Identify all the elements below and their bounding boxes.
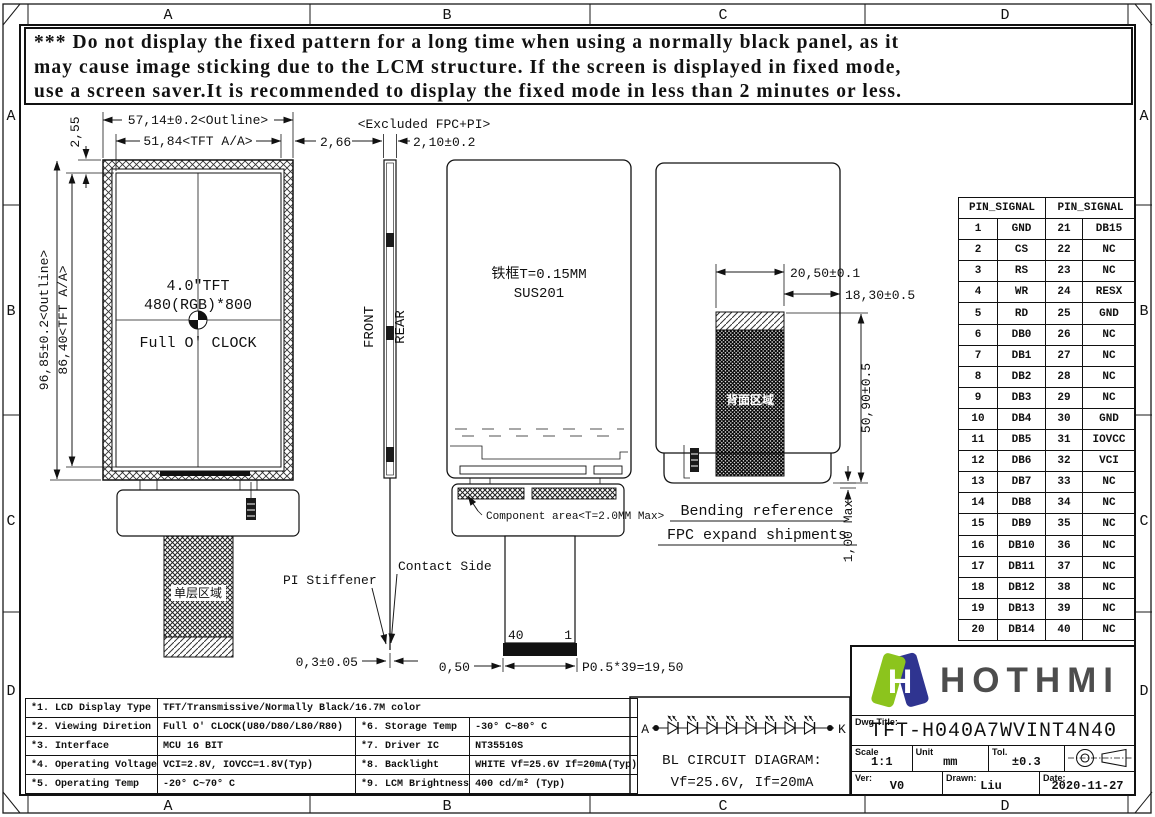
pin-signal: DB8 <box>998 493 1046 514</box>
pin-number: 37 <box>1046 556 1083 577</box>
version-value: V0 <box>852 779 942 793</box>
fpc-back-area-label: 背面区域 <box>726 392 774 408</box>
spec-label: *3. Interface <box>26 737 158 756</box>
table-row: 15DB935NC <box>959 514 1136 535</box>
pin-number: 31 <box>1046 430 1083 451</box>
bl-circuit-values: Vf=25.6V, If=20mA <box>671 775 814 791</box>
grid-letter: A <box>163 798 172 815</box>
bending-caption-1: Bending reference <box>680 503 833 520</box>
pin-signal: DB4 <box>998 408 1046 429</box>
table-row: 12DB632VCI <box>959 451 1136 472</box>
bending-reference-drawing: 背面区域 20,50±0.1 18,30±0.5 50,90±0.5 1,00 … <box>656 163 915 562</box>
pin-number: 12 <box>959 451 998 472</box>
pin-signal: DB9 <box>998 514 1046 535</box>
pin-signal: NC <box>1083 345 1136 366</box>
table-row: 17DB1137NC <box>959 556 1136 577</box>
pin-signal: RS <box>998 261 1046 282</box>
table-row: 9DB329NC <box>959 387 1136 408</box>
dim-fpc-edge-offset: 18,30±0.5 <box>845 288 915 303</box>
brand-name: HOTHMI <box>940 661 1120 701</box>
dwg-title-row: Dwg Title: TFT-H040A7WVINT4N40 <box>852 715 1135 745</box>
drawing-title: TFT-H040A7WVINT4N40 <box>852 720 1135 743</box>
pin-40-label: 40 <box>508 628 524 643</box>
grid-letter: A <box>6 108 15 125</box>
rear-view-drawing: 铁框T=0.15MM SUS201 Component area<T=2.0MM… <box>439 160 684 675</box>
pin-signal: DB0 <box>998 324 1046 345</box>
bl-circuit-diagram: A K BL CIRCUIT DIAGRAM: Vf=25.6V, If=20m… <box>641 716 846 792</box>
pin-number: 33 <box>1046 472 1083 493</box>
pin-signal: NC <box>1083 324 1136 345</box>
pin-number: 14 <box>959 493 998 514</box>
pin-number: 6 <box>959 324 998 345</box>
table-row: 16DB1036NC <box>959 535 1136 556</box>
anode-label: A <box>641 722 649 737</box>
pin-signal: DB2 <box>998 366 1046 387</box>
pin-signal: DB3 <box>998 387 1046 408</box>
svg-text:H: H <box>888 663 913 701</box>
grid-letter: D <box>1000 7 1009 24</box>
pin-number: 28 <box>1046 366 1083 387</box>
pin-signal: GND <box>998 219 1046 240</box>
spec-value: Full O' CLOCK(U80/D80/L80/R80) <box>158 718 356 737</box>
rear-side-label: REAR <box>393 310 409 344</box>
pin-signal: CS <box>998 240 1046 261</box>
table-row: 4WR24RESX <box>959 282 1136 303</box>
pin-number: 20 <box>959 619 998 640</box>
pin-number: 3 <box>959 261 998 282</box>
pin-number: 35 <box>1046 514 1083 535</box>
pin-signal: DB10 <box>998 535 1046 556</box>
pin-signal: NC <box>1083 240 1136 261</box>
spec-label: *5. Operating Temp <box>26 775 158 794</box>
pin-number: 34 <box>1046 493 1083 514</box>
table-row: *5. Operating Temp -20° C~70° C *9. LCM … <box>26 775 638 794</box>
pin-signal: NC <box>1083 619 1136 640</box>
pin-1-label: 1 <box>564 628 572 643</box>
pin-signal: RD <box>998 303 1046 324</box>
table-row: *2. Viewing Diretion Full O' CLOCK(U80/D… <box>26 718 638 737</box>
pin-signal: NC <box>1083 366 1136 387</box>
grid-letter: C <box>718 7 727 24</box>
pin-signal: WR <box>998 282 1046 303</box>
frame-material-grade: SUS201 <box>514 286 564 302</box>
unit-value: mm <box>913 755 988 769</box>
dim-pin-pitch: P0.5*39=19,50 <box>582 660 683 675</box>
specification-table: *1. LCD Display Type TFT/Transmissive/No… <box>25 698 638 794</box>
pin-number: 36 <box>1046 535 1083 556</box>
table-row: 19DB1339NC <box>959 598 1136 619</box>
dim-border-right: 2,66 <box>320 135 351 150</box>
spec-value: -20° C~70° C <box>158 775 356 794</box>
component-area-label: Component area<T=2.0MM Max> <box>486 511 664 523</box>
pin-number: 2 <box>959 240 998 261</box>
pin-number: 24 <box>1046 282 1083 303</box>
dim-pi-thickness: 0,3±0.05 <box>296 655 358 670</box>
pin-number: 13 <box>959 472 998 493</box>
grid-letter: A <box>163 7 172 24</box>
table-row: 3RS23NC <box>959 261 1136 282</box>
pin-number: 16 <box>959 535 998 556</box>
spec-label: *7. Driver IC <box>356 737 470 756</box>
dim-thickness: 2,10±0.2 <box>413 135 475 150</box>
pin-number: 11 <box>959 430 998 451</box>
pin-number: 5 <box>959 303 998 324</box>
pin-number: 32 <box>1046 451 1083 472</box>
dim-pin-offset: 0,50 <box>439 660 470 675</box>
spec-value: TFT/Transmissive/Normally Black/16.7M co… <box>158 699 638 718</box>
pin-signal: NC <box>1083 535 1136 556</box>
single-layer-area-label: 单层区域 <box>174 586 222 601</box>
grid-letter: B <box>442 798 451 815</box>
pin-number: 9 <box>959 387 998 408</box>
grid-letter: B <box>6 303 15 320</box>
pin-number: 22 <box>1046 240 1083 261</box>
table-row: 6DB026NC <box>959 324 1136 345</box>
panel-size-label: 4.0″TFT <box>166 278 229 295</box>
table-row: *4. Operating Voltage VCI=2.8V, IOVCC=1.… <box>26 756 638 775</box>
dim-active-area-width: 51,84<TFT A/A> <box>143 134 252 149</box>
pin-signal: NC <box>1083 556 1136 577</box>
pin-signal: DB12 <box>998 577 1046 598</box>
front-side-label: FRONT <box>362 306 378 348</box>
pin-signal: DB13 <box>998 598 1046 619</box>
grid-letter: A <box>1139 108 1148 125</box>
viewing-direction-label: Full O' CLOCK <box>139 335 256 352</box>
table-row: 7DB127NC <box>959 345 1136 366</box>
contact-side-label: Contact Side <box>398 559 492 574</box>
spec-label: *6. Storage Temp <box>356 718 470 737</box>
frame-material-note: 铁框T=0.15MM <box>491 266 586 283</box>
dim-outline-width: 57,14±0.2<Outline> <box>128 113 269 128</box>
pin-number: 8 <box>959 366 998 387</box>
pin-signal-table: PIN_SIGNAL PIN_SIGNAL 1GND21DB15 2CS22NC… <box>958 197 1136 641</box>
pin-signal: VCI <box>1083 451 1136 472</box>
pin-signal: DB5 <box>998 430 1046 451</box>
panel-resolution-label: 480(RGB)*800 <box>144 297 252 314</box>
title-block: H HOTHMI Dwg Title: TFT-H040A7WVINT4N40 … <box>850 645 1135 795</box>
pin-signal: DB15 <box>1083 219 1136 240</box>
spec-value: -30° C~80° C <box>470 718 638 737</box>
warning-line: use a screen saver.It is recommended to … <box>34 80 1123 105</box>
pin-signal: GND <box>1083 303 1136 324</box>
grid-letter: C <box>718 798 727 815</box>
spec-value: MCU 16 BIT <box>158 737 356 756</box>
pin-signal: NC <box>1083 261 1136 282</box>
table-row: 20DB1440NC <box>959 619 1136 640</box>
table-row: 18DB1238NC <box>959 577 1136 598</box>
table-row: *3. Interface MCU 16 BIT *7. Driver IC N… <box>26 737 638 756</box>
bl-circuit-title: BL CIRCUIT DIAGRAM: <box>662 753 822 769</box>
pin-signal: IOVCC <box>1083 430 1136 451</box>
table-row: 13DB733NC <box>959 472 1136 493</box>
pin-signal: DB11 <box>998 556 1046 577</box>
pin-number: 30 <box>1046 408 1083 429</box>
pi-stiffener-label: PI Stiffener <box>283 573 377 588</box>
pin-number: 40 <box>1046 619 1083 640</box>
third-angle-projection-icon <box>1065 746 1135 770</box>
pin-number: 26 <box>1046 324 1083 345</box>
cathode-label: K <box>838 722 846 737</box>
spec-label: *8. Backlight <box>356 756 470 775</box>
bending-caption-2: FPC expand shipments <box>667 527 847 544</box>
grid-letter: D <box>1139 683 1148 700</box>
date-value: 2020-11-27 <box>1040 779 1135 793</box>
pin-number: 38 <box>1046 577 1083 598</box>
pin-signal: DB6 <box>998 451 1046 472</box>
pin-number: 27 <box>1046 345 1083 366</box>
spec-label: *2. Viewing Diretion <box>26 718 158 737</box>
scale-value: 1:1 <box>852 755 912 769</box>
pin-signal: DB7 <box>998 472 1046 493</box>
pin-signal: NC <box>1083 472 1136 493</box>
pin-number: 23 <box>1046 261 1083 282</box>
spec-value: VCI=2.8V, IOVCC=1.8V(Typ) <box>158 756 356 775</box>
pin-number: 39 <box>1046 598 1083 619</box>
spec-value: NT35510S <box>470 737 638 756</box>
pin-signal: NC <box>1083 514 1136 535</box>
spec-value: WHITE Vf=25.6V If=20mA(Typ) <box>470 756 638 775</box>
table-row: 2CS22NC <box>959 240 1136 261</box>
pin-signal: DB1 <box>998 345 1046 366</box>
pin-number: 29 <box>1046 387 1083 408</box>
hothmi-logo-icon: H <box>860 649 940 713</box>
logo-row: H HOTHMI <box>852 647 1135 715</box>
pin-signal: RESX <box>1083 282 1136 303</box>
dim-fpc-width: 20,50±0.1 <box>790 266 860 281</box>
pin-number: 15 <box>959 514 998 535</box>
dim-outline-height: 96,85±0.2<Outline> <box>37 250 52 391</box>
grid-letter: D <box>1000 798 1009 815</box>
grid-letter: C <box>6 513 15 530</box>
grid-letter: B <box>442 7 451 24</box>
pin-number: 4 <box>959 282 998 303</box>
table-row: *1. LCD Display Type TFT/Transmissive/No… <box>26 699 638 718</box>
dim-active-area-height: 86,40<TFT A/A> <box>56 265 71 374</box>
table-row: 14DB834NC <box>959 493 1136 514</box>
pin-signal-header: PIN_SIGNAL <box>959 198 1046 219</box>
pin-signal-header: PIN_SIGNAL <box>1046 198 1136 219</box>
grid-letter: C <box>1139 513 1148 530</box>
table-row: 11DB531IOVCC <box>959 430 1136 451</box>
ver-drawn-date-row: Ver: V0 Drawn: Liu Date: 2020-11-27 <box>852 771 1135 795</box>
pin-signal: NC <box>1083 387 1136 408</box>
grid-letter: D <box>6 683 15 700</box>
table-row: 10DB430GND <box>959 408 1136 429</box>
drawing-sheet: A B C D A B C D A B C D A B C D 4.0″TFT … <box>0 0 1155 817</box>
pin-signal: GND <box>1083 408 1136 429</box>
table-row: 5RD25GND <box>959 303 1136 324</box>
pin-table-header: PIN_SIGNAL PIN_SIGNAL <box>959 198 1136 219</box>
dim-border-top: 2,55 <box>68 116 83 147</box>
pin-number: 19 <box>959 598 998 619</box>
grid-letter: B <box>1139 303 1148 320</box>
pin-number: 10 <box>959 408 998 429</box>
pin-number: 21 <box>1046 219 1083 240</box>
spec-value: 400 cd/m² (Typ) <box>470 775 638 794</box>
pin-number: 18 <box>959 577 998 598</box>
spec-label: *9. LCM Brightness <box>356 775 470 794</box>
spec-label: *4. Operating Voltage <box>26 756 158 775</box>
drawn-by-value: Liu <box>943 779 1039 793</box>
tolerance-value: ±0.3 <box>989 755 1063 769</box>
dim-bend-height: 50,90±0.5 <box>859 363 874 433</box>
excluded-fpc-note: <Excluded FPC+PI> <box>358 117 491 132</box>
spec-label: *1. LCD Display Type <box>26 699 158 718</box>
scale-unit-tol-row: Scale 1:1 Unit mm Tol. ±0.3 <box>852 745 1135 771</box>
warning-line: may cause image sticking due to the LCM … <box>34 56 1123 81</box>
pin-signal: NC <box>1083 577 1136 598</box>
pin-signal: DB14 <box>998 619 1046 640</box>
pin-signal: NC <box>1083 598 1136 619</box>
pin-number: 25 <box>1046 303 1083 324</box>
pin-signal: NC <box>1083 493 1136 514</box>
pin-number: 1 <box>959 219 998 240</box>
warning-note: *** Do not display the fixed pattern for… <box>24 27 1133 105</box>
table-row: 1GND21DB15 <box>959 219 1136 240</box>
pin-number: 7 <box>959 345 998 366</box>
warning-line: *** Do not display the fixed pattern for… <box>34 31 1123 56</box>
pin-number: 17 <box>959 556 998 577</box>
table-row: 8DB228NC <box>959 366 1136 387</box>
